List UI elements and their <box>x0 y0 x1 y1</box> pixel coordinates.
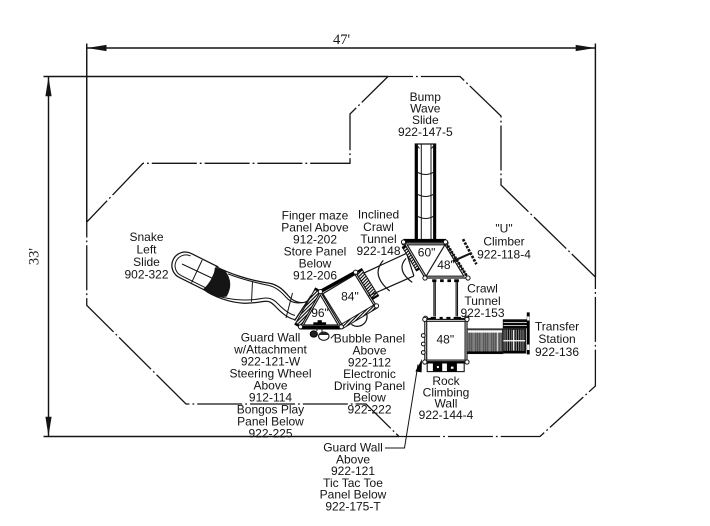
svg-text:48": 48" <box>436 333 454 347</box>
svg-text:922-175-T: 922-175-T <box>325 500 381 514</box>
svg-text:33': 33' <box>26 248 42 265</box>
svg-text:922-147-5: 922-147-5 <box>398 125 453 139</box>
svg-text:"U": "U" <box>495 222 512 236</box>
svg-text:96": 96" <box>311 306 329 320</box>
svg-text:60": 60" <box>418 245 436 259</box>
svg-text:47': 47' <box>333 32 350 48</box>
svg-text:922-136: 922-136 <box>535 345 579 359</box>
svg-text:922-118-4: 922-118-4 <box>477 247 531 261</box>
svg-text:Climber: Climber <box>483 235 524 249</box>
svg-text:922-148: 922-148 <box>356 244 400 258</box>
svg-text:922-225: 922-225 <box>248 427 292 441</box>
svg-text:48": 48" <box>437 258 455 272</box>
svg-text:84": 84" <box>341 290 359 304</box>
svg-text:902-322: 902-322 <box>124 268 168 282</box>
svg-text:922-153: 922-153 <box>460 306 504 320</box>
svg-text:922-144-4: 922-144-4 <box>419 408 474 422</box>
svg-text:912-206: 912-206 <box>293 268 337 282</box>
svg-text:922-222: 922-222 <box>347 403 391 417</box>
